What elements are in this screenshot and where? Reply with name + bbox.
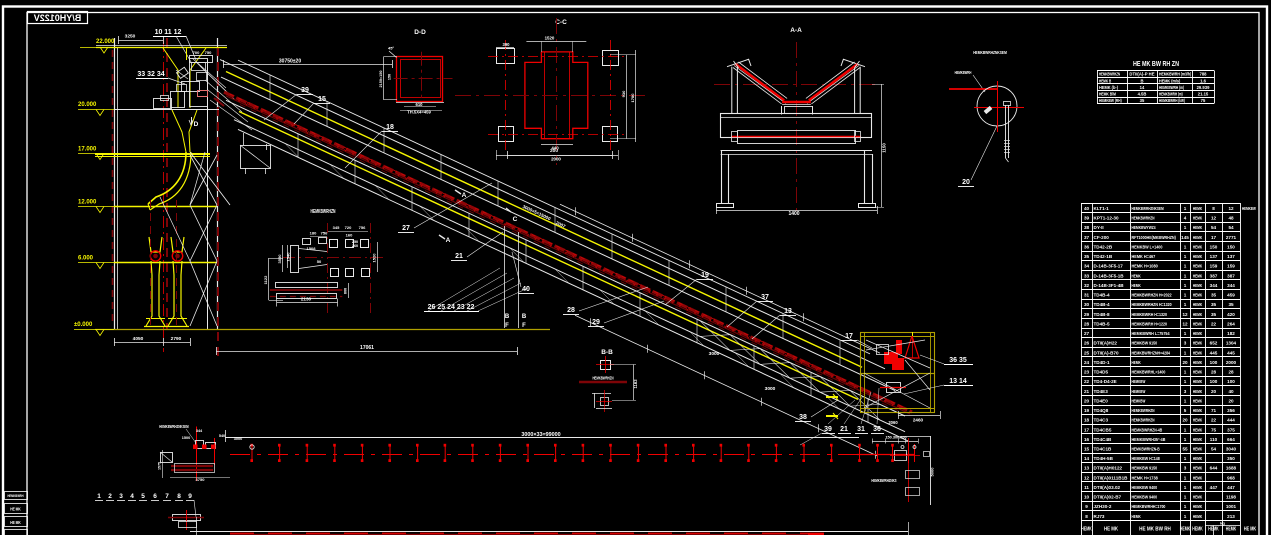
svg-text:HEMK: HEMK xyxy=(1192,527,1203,533)
svg-text:HEMKBWRHZN H=2022: HEMKBWRHZN H=2022 xyxy=(1132,293,1172,298)
svg-text:1001: 1001 xyxy=(1226,504,1237,509)
svg-text:D: D xyxy=(194,121,199,128)
svg-text:445: 445 xyxy=(1227,350,1235,355)
svg-text:HEMKBWRHL=1400: HEMKBWRHL=1400 xyxy=(1132,370,1166,375)
svg-text:40: 40 xyxy=(522,286,530,293)
svg-text:HEMK: HEMK xyxy=(1193,225,1203,230)
svg-text:29: 29 xyxy=(592,319,600,326)
svg-text:8: 8 xyxy=(1085,514,1088,519)
svg-text:35: 35 xyxy=(1228,302,1234,307)
svg-text:3: 3 xyxy=(1184,389,1187,394)
svg-text:1: 1 xyxy=(1184,254,1187,259)
svg-text:HEMK: HEMK xyxy=(1193,427,1203,432)
svg-text:4.5B: 4.5B xyxy=(1138,91,1147,96)
svg-text:HEMKBWRHZNH=4284: HEMKBWRHZNH=4284 xyxy=(1132,350,1171,355)
svg-text:F: F xyxy=(505,323,509,329)
svg-text:2790: 2790 xyxy=(171,336,182,342)
svg-text:HEMKBW 9400: HEMKBW 9400 xyxy=(1132,485,1158,490)
svg-text:4: 4 xyxy=(1184,216,1187,221)
svg-text:HEMK: HEMK xyxy=(1226,527,1237,533)
svg-text:HEMKBWRHZN: HEMKBWRHZN xyxy=(1132,408,1155,413)
svg-text:19: 19 xyxy=(1084,408,1090,413)
svg-text:36: 36 xyxy=(873,426,881,433)
svg-text:HEMKBWRH: HEMKBWRH xyxy=(8,493,24,498)
svg-text:HEMK: HEMK xyxy=(1193,485,1203,490)
svg-text:264: 264 xyxy=(1227,321,1235,326)
svg-text:HEMKBWRHZN: HEMKBWRHZN xyxy=(593,376,614,381)
svg-text:5: 5 xyxy=(1184,408,1187,413)
svg-text:RFT1000HE(MKBWRHZN): RFT1000HE(MKBWRHZN) xyxy=(1132,235,1177,240)
svg-text:D-14B-3F5-17: D-14B-3F5-17 xyxy=(1094,264,1124,269)
svg-text:350: 350 xyxy=(1227,456,1235,461)
svg-text:HEMKBWRH (m): HEMKBWRH (m) xyxy=(1159,91,1183,96)
svg-text:B: B xyxy=(522,314,527,320)
svg-text:HEMK: HEMK xyxy=(1193,504,1203,509)
svg-text:1304: 1304 xyxy=(1226,341,1237,346)
svg-text:21: 21 xyxy=(840,426,848,433)
svg-text:HEMKBWRHH=1700: HEMKBWRHH=1700 xyxy=(1132,504,1166,509)
svg-text:HEMKBWRH H=1320: HEMKBWRH H=1320 xyxy=(1132,312,1168,317)
svg-text:HEMK: HEMK xyxy=(1132,360,1142,365)
svg-text:HEMK: HEMK xyxy=(1193,245,1203,250)
svg-text:180: 180 xyxy=(310,231,317,236)
svg-text:18: 18 xyxy=(1084,418,1090,423)
svg-text:20.000: 20.000 xyxy=(78,102,97,108)
svg-text:TD4B-5: TD4B-5 xyxy=(1094,321,1111,326)
svg-text:HEMKBWRH (kW): HEMKBWRH (kW) xyxy=(1159,98,1185,103)
svg-text:HEMKBW H=148: HEMKBW H=148 xyxy=(1132,456,1161,461)
svg-text:1198: 1198 xyxy=(1226,495,1236,500)
svg-text:344: 344 xyxy=(196,429,203,433)
svg-text:22: 22 xyxy=(1211,418,1217,423)
svg-text:D-14B-3F5-1B: D-14B-3F5-1B xyxy=(1094,273,1125,278)
svg-text:HEMK: HEMK xyxy=(1193,331,1203,336)
svg-text:HEMK B/M: HEMK B/M xyxy=(1099,91,1116,96)
svg-text:33 32 34: 33 32 34 xyxy=(137,71,164,78)
svg-text:34: 34 xyxy=(1084,264,1090,269)
svg-text:HEMK: HEMK xyxy=(1193,312,1203,317)
svg-text:540: 540 xyxy=(219,434,225,438)
svg-text:1575: 1575 xyxy=(158,462,162,470)
svg-text:HEMK: HEMK xyxy=(1193,456,1203,461)
svg-text:16: 16 xyxy=(1084,437,1090,442)
svg-text:17: 17 xyxy=(1211,235,1217,240)
svg-text:1: 1 xyxy=(1184,245,1187,250)
svg-text:9: 9 xyxy=(188,493,192,500)
svg-text:1: 1 xyxy=(1184,225,1187,230)
svg-text:39: 39 xyxy=(1084,216,1090,221)
svg-text:19: 19 xyxy=(701,272,709,279)
svg-text:HEMKBWRH H=1220: HEMKBWRH H=1220 xyxy=(1132,321,1168,326)
svg-text:788: 788 xyxy=(1200,72,1208,77)
svg-text:28: 28 xyxy=(1084,321,1090,326)
svg-text:17: 17 xyxy=(1084,427,1090,432)
svg-text:HEMK: HEMK xyxy=(1193,254,1203,259)
svg-text:38: 38 xyxy=(799,414,807,421)
svg-text:22: 22 xyxy=(1084,379,1090,384)
svg-text:22: 22 xyxy=(1211,321,1217,326)
svg-text:HEMKBWRHZN: HEMKBWRHZN xyxy=(1099,72,1120,77)
svg-text:DTII(A)02-B7: DTII(A)02-B7 xyxy=(1094,495,1122,500)
svg-text:1520: 1520 xyxy=(545,36,555,41)
svg-text:13: 13 xyxy=(1084,466,1090,471)
svg-text:344: 344 xyxy=(1227,283,1235,288)
svg-text:HEMKBW (RH): HEMKBW (RH) xyxy=(1099,98,1122,103)
svg-text:2000: 2000 xyxy=(551,157,561,162)
svg-text:800: 800 xyxy=(344,288,348,294)
svg-text:HEMK: HEMK xyxy=(1193,475,1203,480)
svg-text:2000: 2000 xyxy=(1226,360,1237,365)
svg-text:HEMKBWYWZ4: HEMKBWYWZ4 xyxy=(1132,225,1156,230)
svg-text:HEMK: HEMK xyxy=(1193,418,1203,423)
svg-text:TD4C1B: TD4C1B xyxy=(1094,447,1113,452)
svg-text:48: 48 xyxy=(1228,216,1234,221)
svg-text:HEMKBW L=1400: HEMKBW L=1400 xyxy=(1132,245,1163,250)
svg-text:13: 13 xyxy=(784,308,792,315)
svg-text:HEMKBW: HEMKBW xyxy=(1132,389,1146,394)
svg-text:TD4D5: TD4D5 xyxy=(1094,370,1109,375)
svg-text:8: 8 xyxy=(177,493,181,500)
svg-text:20: 20 xyxy=(1084,398,1090,403)
svg-text:40: 40 xyxy=(1084,206,1090,211)
svg-text:HEMK: HEMK xyxy=(1193,398,1203,403)
svg-text:1: 1 xyxy=(1184,475,1187,480)
svg-text:18: 18 xyxy=(386,124,394,131)
svg-text:3040: 3040 xyxy=(1226,447,1237,452)
svg-text:1: 1 xyxy=(1184,514,1187,519)
svg-text:375: 375 xyxy=(1227,427,1235,432)
svg-text:CF-200: CF-200 xyxy=(1094,235,1110,240)
svg-text:HEMK (b-): HEMK (b-) xyxy=(1099,85,1119,90)
svg-text:644: 644 xyxy=(1210,466,1218,471)
svg-text:HE MK: HE MK xyxy=(1244,527,1256,533)
svg-text:HEMK: HEMK xyxy=(1193,360,1203,365)
svg-text:HEMK: HEMK xyxy=(1132,514,1142,519)
svg-text:HEMK: HEMK xyxy=(1193,389,1203,394)
svg-text:444: 444 xyxy=(1227,418,1235,423)
svg-text:HEMK: HEMK xyxy=(1180,527,1191,533)
svg-text:HEMKBWRH L=75754: HEMKBWRH L=75754 xyxy=(1132,331,1170,336)
svg-text:HEMK: HEMK xyxy=(1193,302,1203,307)
svg-text:150: 150 xyxy=(1227,245,1235,250)
svg-text:54: 54 xyxy=(1211,447,1217,452)
svg-text:1: 1 xyxy=(1184,456,1187,461)
svg-text:2130: 2130 xyxy=(301,297,312,302)
svg-text:29.939: 29.939 xyxy=(1197,85,1210,90)
svg-text:C: C xyxy=(513,216,518,223)
svg-text:HEMK B: HEMK B xyxy=(1099,78,1111,83)
svg-text:HEMK: HEMK xyxy=(1193,370,1203,375)
svg-text:RJ73: RJ73 xyxy=(1094,514,1105,519)
svg-text:28: 28 xyxy=(1211,370,1217,375)
svg-text:8: 8 xyxy=(1212,206,1215,211)
svg-text:30: 30 xyxy=(1084,302,1090,307)
svg-text:100: 100 xyxy=(1210,360,1218,365)
svg-text:B: B xyxy=(505,314,510,320)
svg-text:TD4B-4: TD4B-4 xyxy=(1094,302,1111,307)
svg-text:5000: 5000 xyxy=(930,467,935,477)
svg-text:756: 756 xyxy=(321,231,328,236)
svg-text:HE MK: HE MK xyxy=(1104,527,1118,533)
svg-text:54: 54 xyxy=(1228,225,1234,230)
svg-text:20: 20 xyxy=(1182,360,1188,365)
svg-text:32: 32 xyxy=(1084,283,1090,288)
svg-text:HEMK: HEMK xyxy=(1193,447,1203,452)
svg-text:28: 28 xyxy=(567,307,575,314)
svg-text:390: 390 xyxy=(503,42,511,47)
svg-text:750: 750 xyxy=(205,50,212,55)
svg-text:7: 7 xyxy=(165,493,169,500)
svg-text:1: 1 xyxy=(1184,398,1187,403)
svg-text:137: 137 xyxy=(1227,254,1235,259)
svg-text:33: 33 xyxy=(1084,273,1090,278)
svg-text:3250: 3250 xyxy=(125,34,136,40)
svg-text:17061: 17061 xyxy=(360,345,374,351)
svg-text:31: 31 xyxy=(1084,293,1090,298)
svg-text:1.6: 1.6 xyxy=(1200,78,1206,83)
svg-text:11: 11 xyxy=(1084,485,1089,490)
svg-text:HEMK: HEMK xyxy=(1193,273,1203,278)
svg-text:HEMKBWRH (m): HEMKBWRH (m) xyxy=(1159,85,1184,90)
svg-text:1: 1 xyxy=(1184,293,1187,298)
svg-text:3750: 3750 xyxy=(196,477,206,482)
svg-text:HEMK: HEMK xyxy=(1193,283,1203,288)
svg-text:D-D: D-D xyxy=(414,29,426,36)
svg-text:HEMKBWRHZNKSEM: HEMKBWRHZNKSEM xyxy=(1132,206,1164,211)
svg-text:25: 25 xyxy=(1084,350,1090,355)
svg-text:150: 150 xyxy=(1210,245,1218,250)
svg-text:17: 17 xyxy=(845,333,853,340)
svg-text:3000: 3000 xyxy=(709,351,720,357)
svg-text:HEMKBWRHZNKS: HEMKBWRHZNKS xyxy=(871,478,896,483)
svg-text:75: 75 xyxy=(1201,98,1206,103)
svg-text:1: 1 xyxy=(1184,379,1187,384)
svg-text:1688: 1688 xyxy=(1226,466,1237,471)
svg-text:HEMK: HEMK xyxy=(1132,273,1142,278)
svg-text:A-A: A-A xyxy=(790,27,802,34)
svg-text:HEMKBWRHZNKSEM: HEMKBWRHZNKSEM xyxy=(973,50,1007,56)
svg-text:100: 100 xyxy=(1227,379,1235,384)
svg-text:71: 71 xyxy=(1211,408,1217,413)
svg-text:HEMK: HEMK xyxy=(1193,437,1203,442)
svg-text:1: 1 xyxy=(1184,206,1187,211)
svg-text:HEMK: HEMK xyxy=(1193,341,1203,346)
svg-text:4: 4 xyxy=(130,493,134,500)
svg-text:12: 12 xyxy=(1228,206,1234,211)
svg-text:HE MK BW RH: HE MK BW RH xyxy=(1139,527,1171,533)
svg-text:1: 1 xyxy=(1184,370,1187,375)
svg-text:TD42-2B: TD42-2B xyxy=(1094,245,1113,250)
svg-text:TD4C3: TD4C3 xyxy=(1094,418,1109,423)
svg-text:9: 9 xyxy=(1085,504,1088,509)
svg-text:2060: 2060 xyxy=(888,420,898,425)
svg-text:145: 145 xyxy=(1181,235,1189,240)
svg-text:HEMK: HEMK xyxy=(1193,514,1203,519)
svg-text:HEMK: HEMK xyxy=(1193,293,1203,298)
svg-text:HEMK: HEMK xyxy=(1132,283,1142,288)
svg-text:HEMKBWRH: HEMKBWRH xyxy=(955,70,972,75)
svg-text:35: 35 xyxy=(1211,293,1217,298)
svg-text:TD4-D4-2E: TD4-D4-2E xyxy=(1094,379,1117,384)
svg-text:387: 387 xyxy=(1210,273,1218,278)
svg-text:1122: 1122 xyxy=(263,275,268,284)
svg-text:1150: 1150 xyxy=(882,143,887,153)
svg-text:HEMK H=1080: HEMK H=1080 xyxy=(1132,264,1159,269)
svg-text:HEMK H=1738: HEMK H=1738 xyxy=(1132,475,1159,480)
svg-text:HEMKBWRHZN: HEMKBWRHZN xyxy=(311,209,336,215)
svg-text:22.000: 22.000 xyxy=(96,39,115,45)
svg-text:447: 447 xyxy=(1210,485,1218,490)
svg-text:23: 23 xyxy=(1084,370,1090,375)
svg-text:160: 160 xyxy=(346,233,353,238)
svg-text:35: 35 xyxy=(1084,254,1090,259)
svg-text:54: 54 xyxy=(1211,225,1217,230)
svg-text:45°: 45° xyxy=(388,46,394,51)
svg-text:1540: 1540 xyxy=(286,252,291,262)
svg-text:50: 50 xyxy=(317,259,322,264)
svg-text:JZH30-2: JZH30-2 xyxy=(1094,504,1112,509)
svg-text:HEMK: HEMK xyxy=(1193,321,1203,326)
svg-text:28: 28 xyxy=(1228,370,1234,375)
svg-text:3: 3 xyxy=(1184,466,1187,471)
svg-text:29: 29 xyxy=(1084,312,1090,317)
svg-text:15: 15 xyxy=(1084,447,1090,452)
svg-text:20: 20 xyxy=(1211,389,1217,394)
svg-text:17.000: 17.000 xyxy=(78,147,97,153)
svg-text:TD4H-5B: TD4H-5B xyxy=(1094,456,1114,461)
svg-text:459: 459 xyxy=(1227,293,1235,298)
svg-text:TD4E3: TD4E3 xyxy=(1094,389,1109,394)
svg-text:HEMK: HEMK xyxy=(1193,379,1203,384)
svg-text:TD4B-4: TD4B-4 xyxy=(1094,293,1111,298)
svg-text:1520: 1520 xyxy=(372,253,377,263)
svg-text:968: 968 xyxy=(1227,475,1235,480)
svg-text:4050: 4050 xyxy=(133,336,144,342)
svg-text:447: 447 xyxy=(1227,485,1235,490)
svg-text:445: 445 xyxy=(1210,350,1218,355)
svg-text:DTII(A)H0122: DTII(A)H0122 xyxy=(1094,466,1123,471)
svg-text:±0.000: ±0.000 xyxy=(74,322,93,328)
svg-text:HEMK H=467: HEMK H=467 xyxy=(1132,254,1156,259)
svg-text:2: 2 xyxy=(108,493,112,500)
svg-text:420: 420 xyxy=(1227,312,1235,317)
svg-text:159: 159 xyxy=(1210,264,1218,269)
svg-text:1: 1 xyxy=(1184,495,1187,500)
svg-text:36: 36 xyxy=(1084,245,1090,250)
svg-text:1: 1 xyxy=(1184,485,1187,490)
svg-text:2771: 2771 xyxy=(1226,235,1237,240)
svg-text:HEMK: HEMK xyxy=(1193,216,1203,221)
svg-text:12.000: 12.000 xyxy=(78,200,97,206)
svg-text:D-14B-3F1-4B: D-14B-3F1-4B xyxy=(1094,283,1125,288)
svg-text:HEMK: HEMK xyxy=(1193,495,1203,500)
svg-text:1: 1 xyxy=(1184,331,1187,336)
svg-text:TD4Q8: TD4Q8 xyxy=(1094,408,1109,413)
svg-text:30750±20: 30750±20 xyxy=(279,59,301,65)
svg-text:1: 1 xyxy=(1184,350,1187,355)
svg-text:HEMKBW 9150: HEMKBW 9150 xyxy=(1132,341,1158,346)
svg-text:HEMKBWRHZNKSEM: HEMKBWRHZNKSEM xyxy=(159,424,189,429)
svg-text:345: 345 xyxy=(333,225,340,230)
svg-text:24: 24 xyxy=(1084,360,1090,365)
svg-text:12: 12 xyxy=(1182,321,1188,326)
svg-text:1: 1 xyxy=(1184,302,1187,307)
svg-text:182: 182 xyxy=(1227,331,1235,336)
svg-text:21: 21 xyxy=(455,253,463,260)
svg-text:664: 664 xyxy=(1227,437,1235,442)
svg-text:12: 12 xyxy=(1182,312,1188,317)
svg-text:1: 1 xyxy=(1184,273,1187,278)
svg-text:KLT1-1: KLT1-1 xyxy=(1094,206,1110,211)
svg-text:HEMKBW 9150: HEMKBW 9150 xyxy=(1132,466,1158,471)
svg-text:3: 3 xyxy=(1184,341,1187,346)
svg-text:A: A xyxy=(462,192,467,199)
svg-text:1: 1 xyxy=(1184,283,1187,288)
svg-text:HEMK (m/s): HEMK (m/s) xyxy=(1159,78,1181,83)
svg-text:HEMK: HEMK xyxy=(1193,235,1203,240)
svg-text:37: 37 xyxy=(761,294,769,301)
svg-text:14: 14 xyxy=(1140,85,1145,90)
svg-text:HEMKBWRH35°-4B: HEMKBWRH35°-4B xyxy=(1132,437,1166,442)
svg-text:3000: 3000 xyxy=(765,386,776,392)
svg-text:700: 700 xyxy=(193,50,200,55)
svg-text:TD42-1B: TD42-1B xyxy=(1094,254,1113,259)
svg-text:21: 21 xyxy=(1084,389,1090,394)
svg-text:440: 440 xyxy=(551,146,559,151)
svg-text:35: 35 xyxy=(1140,98,1145,103)
svg-text:3000: 3000 xyxy=(234,437,242,441)
svg-text:27: 27 xyxy=(1084,331,1090,336)
svg-text:21.15: 21.15 xyxy=(1198,91,1209,96)
svg-text:2460: 2460 xyxy=(913,418,924,423)
svg-text:kg: kg xyxy=(1220,521,1225,526)
svg-text:TD4D-1: TD4D-1 xyxy=(1094,360,1111,365)
svg-text:HEMKBWRHZN-4B: HEMKBWRHZN-4B xyxy=(1132,427,1163,432)
svg-text:1: 1 xyxy=(1184,504,1187,509)
svg-text:HEMKBW: HEMKBW xyxy=(1132,379,1146,384)
svg-text:3000×33=99000: 3000×33=99000 xyxy=(521,432,560,438)
svg-text:HEMK: HEMK xyxy=(1193,408,1203,413)
svg-text:DTII(A)H22: DTII(A)H22 xyxy=(1094,341,1118,346)
svg-text:B: B xyxy=(1140,78,1143,83)
svg-text:1500: 1500 xyxy=(182,436,190,440)
svg-text:TH.5X4=459: TH.5X4=459 xyxy=(407,109,431,114)
svg-text:31: 31 xyxy=(857,426,865,433)
svg-text:TD4C4B: TD4C4B xyxy=(1094,437,1113,442)
svg-text:10 11 12: 10 11 12 xyxy=(155,29,182,36)
svg-text:KPT1-12-30: KPT1-12-30 xyxy=(1094,216,1119,221)
svg-text:14: 14 xyxy=(1084,456,1090,461)
svg-text:DTII(A)0111B1B: DTII(A)0111B1B xyxy=(1094,475,1129,480)
svg-text:HEMKBW: HEMKBW xyxy=(1132,398,1146,403)
svg-text:HEMKBWRHZN: HEMKBWRHZN xyxy=(1132,418,1155,423)
svg-text:20: 20 xyxy=(1228,398,1234,403)
svg-text:150: 150 xyxy=(388,74,392,80)
svg-text:1: 1 xyxy=(97,493,101,500)
svg-text:HEMK: HEMK xyxy=(1193,466,1203,471)
svg-text:39: 39 xyxy=(301,87,309,94)
svg-text:1508: 1508 xyxy=(307,246,317,251)
svg-text:HEMK: HEMK xyxy=(1081,527,1092,533)
svg-text:356: 356 xyxy=(1227,408,1235,413)
svg-text:27: 27 xyxy=(402,225,410,232)
svg-text:HEMKBW: HEMKBW xyxy=(1242,206,1256,211)
svg-text:20: 20 xyxy=(962,179,970,186)
svg-text:TD4E0: TD4E0 xyxy=(1094,398,1109,403)
svg-text:HEMKBWRHZN-B: HEMKBWRHZN-B xyxy=(1132,447,1161,452)
svg-text:F: F xyxy=(522,323,526,329)
svg-text:12: 12 xyxy=(1211,216,1217,221)
